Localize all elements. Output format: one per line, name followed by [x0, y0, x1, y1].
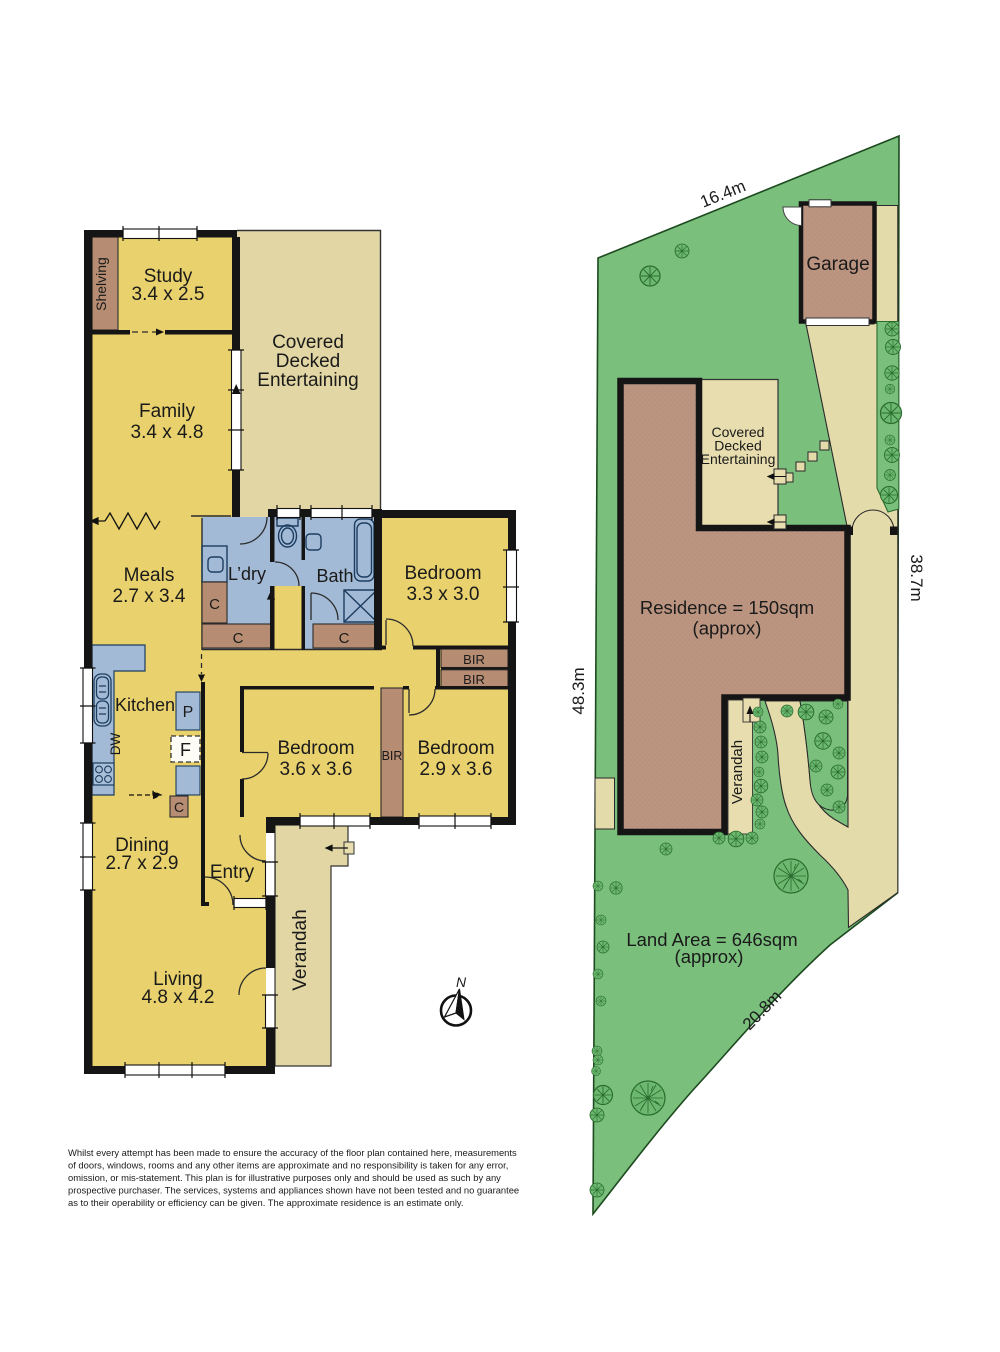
svg-text:prospective purchaser. The se: prospective purchaser. The services, sys… [68, 1185, 519, 1196]
svg-text:Meals: Meals [124, 565, 175, 586]
svg-text:Family: Family [139, 401, 195, 422]
svg-text:Bath: Bath [316, 566, 353, 586]
svg-text:Decked: Decked [276, 351, 340, 372]
svg-text:Shelving: Shelving [93, 257, 109, 311]
svg-text:Verandah: Verandah [729, 740, 746, 804]
svg-text:3.6 x 3.6: 3.6 x 3.6 [280, 759, 353, 780]
svg-text:of doors, windows, rooms and a: of doors, windows, rooms and any other i… [68, 1160, 508, 1171]
svg-text:Bedroom: Bedroom [417, 738, 494, 759]
svg-text:(approx): (approx) [675, 946, 744, 967]
svg-text:3.4 x 4.8: 3.4 x 4.8 [131, 422, 204, 443]
svg-text:as to their operability or eff: as to their operability or efficiency ca… [68, 1197, 464, 1208]
svg-text:Kitchen: Kitchen [115, 695, 175, 715]
svg-text:F: F [180, 740, 191, 760]
svg-text:L’dry: L’dry [228, 564, 266, 584]
svg-text:(approx): (approx) [693, 618, 762, 639]
svg-text:Entertaining: Entertaining [701, 451, 776, 467]
svg-text:C: C [233, 630, 244, 647]
svg-text:Whilst every attempt has been: Whilst every attempt has been made to en… [68, 1147, 517, 1158]
svg-text:Entertaining: Entertaining [257, 370, 358, 391]
svg-text:C: C [209, 596, 220, 613]
svg-text:Verandah: Verandah [290, 909, 311, 990]
svg-text:C: C [174, 799, 184, 815]
svg-text:3.4 x 2.5: 3.4 x 2.5 [132, 284, 205, 305]
svg-text:3.3 x 3.0: 3.3 x 3.0 [407, 584, 480, 605]
svg-text:DW: DW [108, 733, 123, 756]
svg-text:2.7 x 3.4: 2.7 x 3.4 [113, 586, 186, 607]
svg-text:38.7m: 38.7m [907, 554, 926, 601]
svg-text:2.7 x 2.9: 2.7 x 2.9 [106, 853, 179, 874]
svg-text:C: C [339, 630, 350, 647]
svg-text:BIR: BIR [382, 749, 403, 763]
svg-text:Entry: Entry [210, 862, 255, 883]
svg-text:Garage: Garage [806, 254, 869, 275]
svg-text:omission, or mis-statement. T: omission, or mis-statement. This plan is… [68, 1172, 501, 1183]
svg-text:Residence = 150sqm: Residence = 150sqm [640, 597, 814, 618]
svg-text:BIR: BIR [463, 652, 485, 667]
svg-text:2.9 x 3.6: 2.9 x 3.6 [420, 759, 493, 780]
svg-text:48.3m: 48.3m [569, 667, 588, 714]
svg-text:4.8 x 4.2: 4.8 x 4.2 [142, 987, 215, 1008]
svg-text:Bedroom: Bedroom [404, 563, 481, 584]
svg-text:Covered: Covered [272, 332, 344, 353]
svg-text:N: N [456, 974, 467, 990]
svg-text:BIR: BIR [463, 672, 485, 687]
svg-text:P: P [183, 704, 194, 721]
svg-text:Bedroom: Bedroom [277, 738, 354, 759]
